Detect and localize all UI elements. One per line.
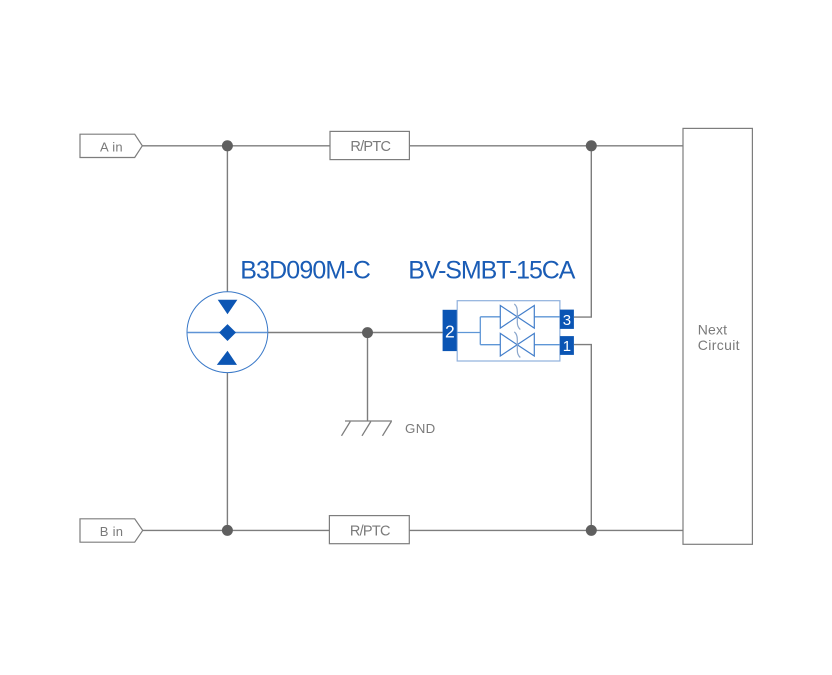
- svg-text:1: 1: [563, 338, 571, 355]
- svg-text:R/PTC: R/PTC: [350, 523, 390, 539]
- svg-text:2: 2: [445, 322, 455, 342]
- svg-text:GND: GND: [405, 421, 436, 436]
- svg-text:A in: A in: [100, 139, 123, 154]
- svg-text:B3D090M-C: B3D090M-C: [240, 257, 371, 285]
- svg-text:B in: B in: [100, 524, 124, 539]
- svg-text:BV-SMBT-15CA: BV-SMBT-15CA: [408, 257, 575, 285]
- svg-text:Circuit: Circuit: [698, 337, 740, 353]
- svg-text:Next: Next: [698, 321, 727, 337]
- svg-text:3: 3: [563, 312, 571, 329]
- svg-text:R/PTC: R/PTC: [350, 139, 390, 155]
